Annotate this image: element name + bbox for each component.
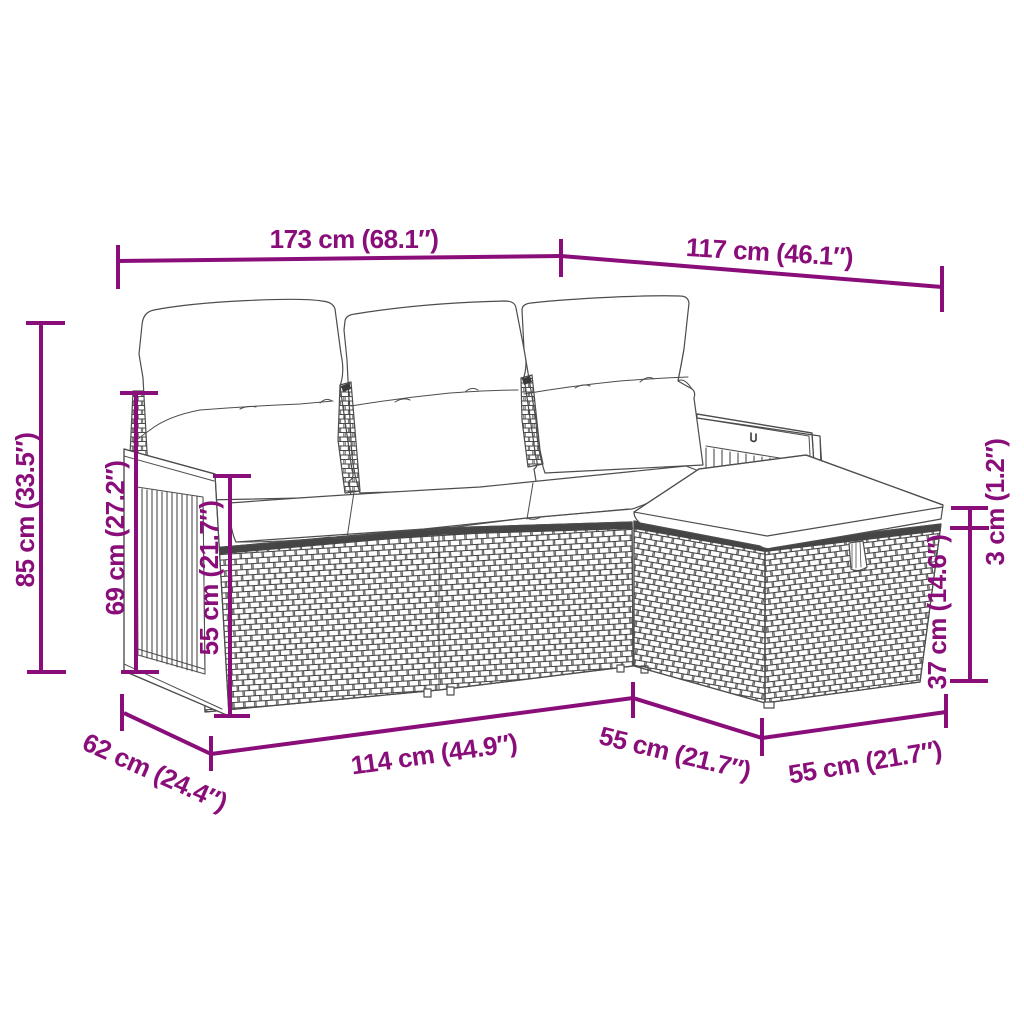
svg-text:85 cm (33.5″): 85 cm (33.5″) [10, 433, 40, 588]
svg-text:37 cm (14.6″): 37 cm (14.6″) [922, 535, 952, 690]
svg-text:55 cm (21.7″): 55 cm (21.7″) [194, 501, 224, 656]
svg-text:173 cm (68.1″): 173 cm (68.1″) [270, 224, 439, 254]
svg-text:3 cm (1.2″): 3 cm (1.2″) [980, 439, 1010, 566]
svg-text:69 cm (27.2″): 69 cm (27.2″) [100, 461, 130, 616]
